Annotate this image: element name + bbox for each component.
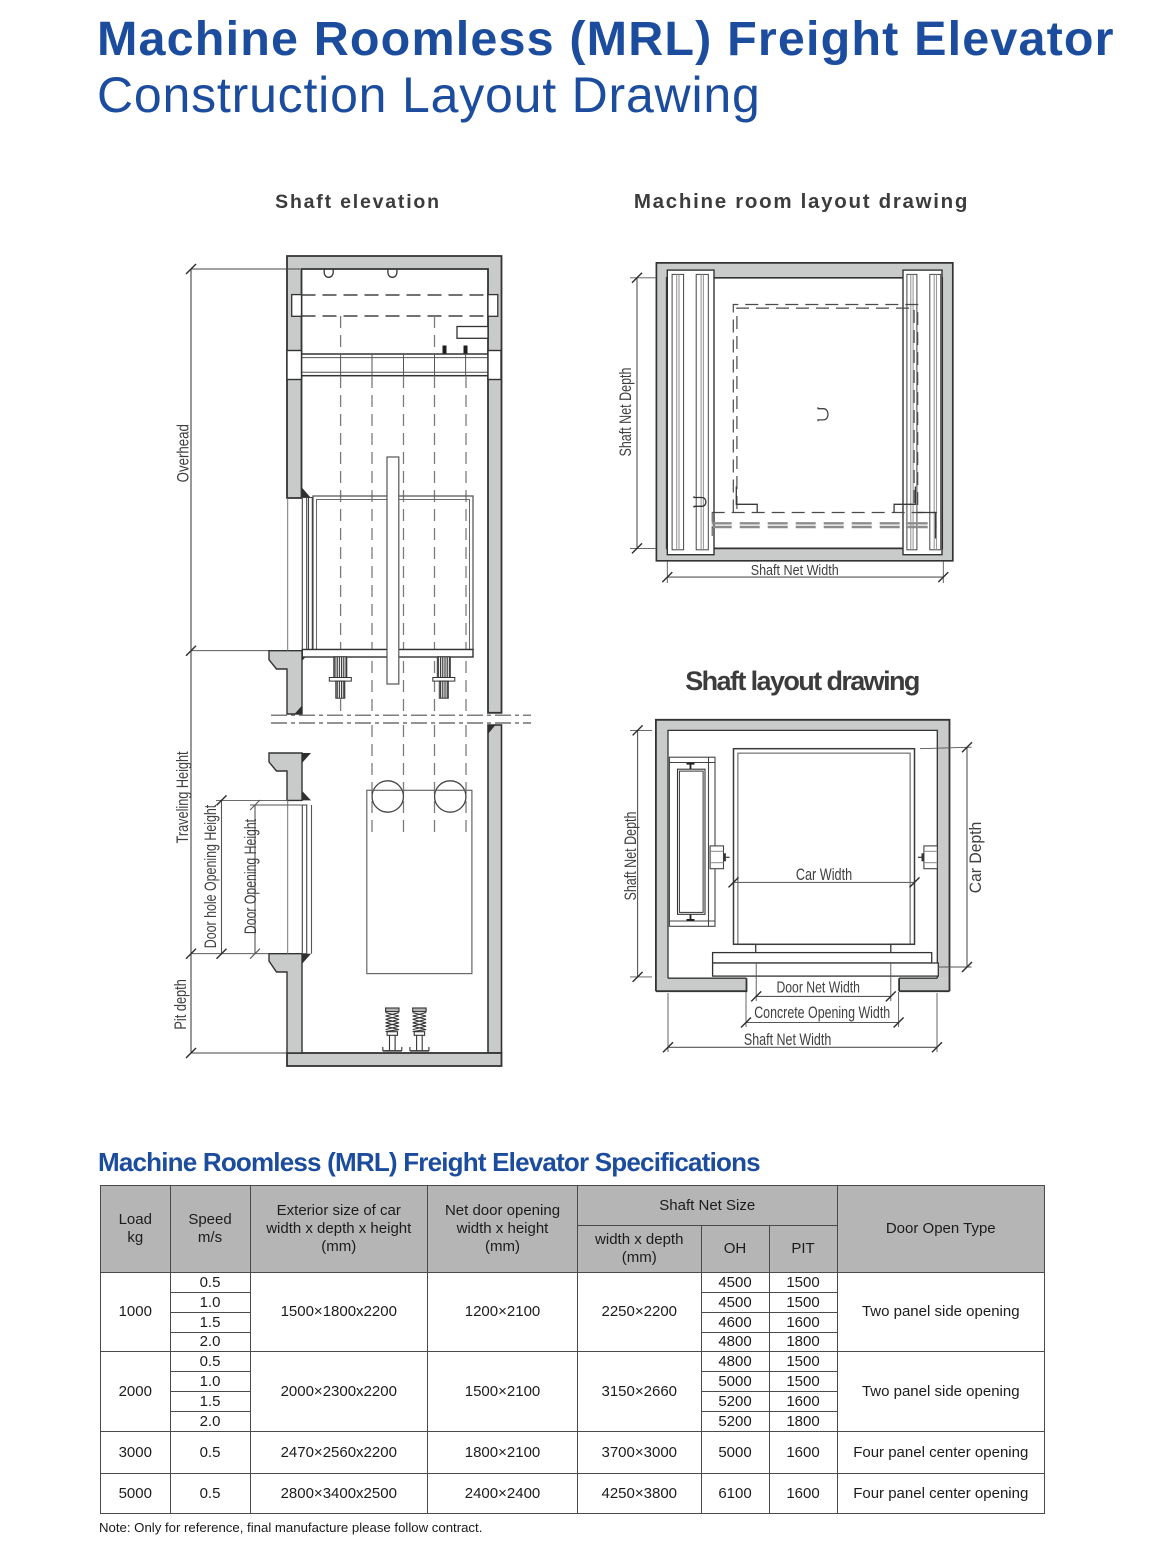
svg-text:Concrete Opening Width: Concrete Opening Width xyxy=(754,1003,890,1022)
svg-text:Pit depth: Pit depth xyxy=(171,979,190,1029)
svg-text:Traveling Height: Traveling Height xyxy=(173,751,192,843)
svg-text:Overhead: Overhead xyxy=(174,424,193,482)
svg-text:Car Depth: Car Depth xyxy=(966,822,985,894)
svg-text:Door Opening Height: Door Opening Height xyxy=(241,819,260,934)
svg-text:Door Net Width: Door Net Width xyxy=(776,980,860,997)
svg-text:Shaft Net Depth: Shaft Net Depth xyxy=(616,368,635,457)
svg-text:Shaft Net Width: Shaft Net Width xyxy=(744,1030,831,1049)
svg-text:Car Width: Car Width xyxy=(796,866,852,884)
svg-text:Shaft Net Width: Shaft Net Width xyxy=(751,562,839,579)
svg-text:Shaft Net Depth: Shaft Net Depth xyxy=(621,812,640,901)
svg-text:Door hole Opening Height: Door hole Opening Height xyxy=(201,805,220,949)
